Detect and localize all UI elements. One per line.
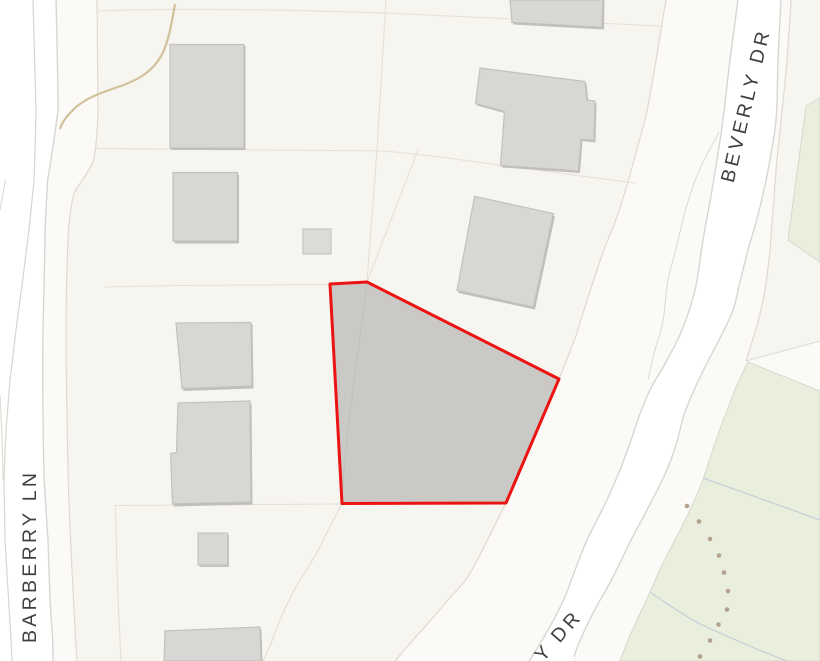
svg-text:BARBERRY LN: BARBERRY LN (19, 470, 41, 643)
